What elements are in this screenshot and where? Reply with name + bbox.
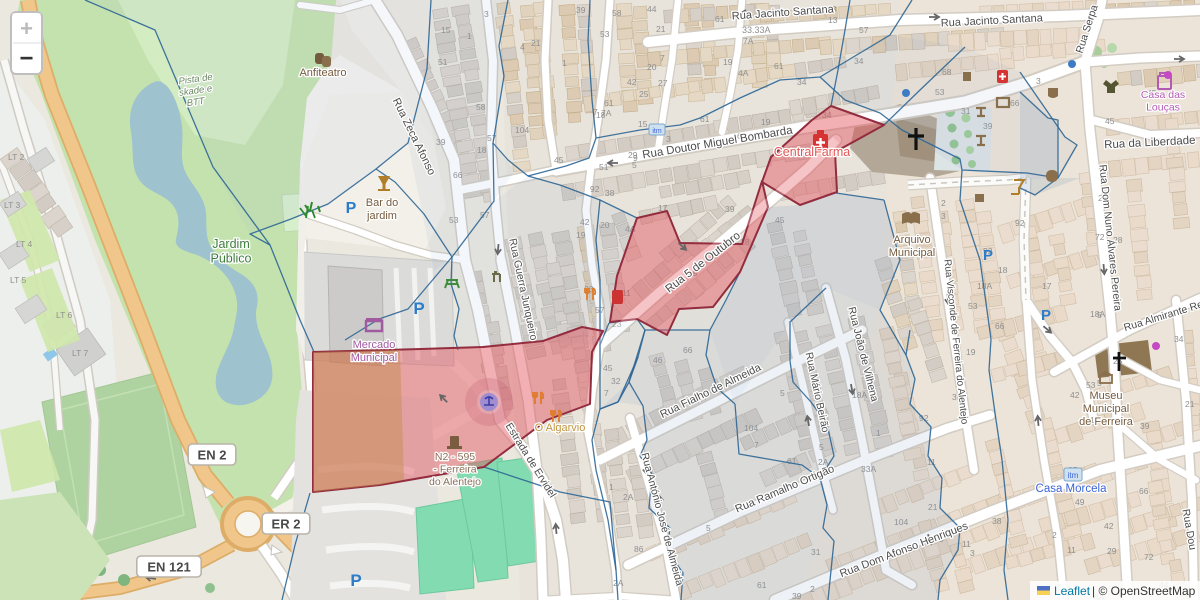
svg-text:EN 2: EN 2 bbox=[198, 448, 227, 463]
svg-text:| © OpenStreetMap: | © OpenStreetMap bbox=[1092, 584, 1196, 598]
svg-text:Municipal: Municipal bbox=[1083, 403, 1129, 415]
svg-text:19: 19 bbox=[723, 57, 733, 67]
svg-text:Municipal: Municipal bbox=[351, 352, 397, 364]
svg-text:P: P bbox=[1041, 307, 1051, 324]
svg-text:- Ferreira: - Ferreira bbox=[433, 464, 476, 476]
svg-text:3: 3 bbox=[970, 548, 975, 558]
svg-text:42: 42 bbox=[627, 77, 637, 87]
svg-text:Louças: Louças bbox=[1146, 102, 1180, 114]
svg-text:LT 5: LT 5 bbox=[10, 275, 26, 285]
svg-text:19: 19 bbox=[761, 117, 771, 127]
svg-text:66: 66 bbox=[995, 321, 1005, 331]
svg-text:39: 39 bbox=[1140, 421, 1150, 431]
svg-text:jardim: jardim bbox=[366, 210, 397, 222]
svg-text:34: 34 bbox=[1174, 334, 1184, 344]
svg-text:45: 45 bbox=[1105, 116, 1115, 126]
svg-text:104: 104 bbox=[515, 125, 529, 135]
svg-text:O Algarvio: O Algarvio bbox=[535, 422, 586, 434]
svg-text:18: 18 bbox=[998, 265, 1008, 275]
svg-text:61: 61 bbox=[715, 14, 725, 24]
svg-text:4: 4 bbox=[520, 42, 525, 52]
svg-text:42: 42 bbox=[1070, 390, 1080, 400]
svg-text:72: 72 bbox=[1095, 232, 1105, 242]
svg-text:39: 39 bbox=[725, 204, 735, 214]
svg-text:Municipal: Municipal bbox=[889, 247, 935, 259]
svg-text:33.33A: 33.33A bbox=[742, 25, 771, 35]
svg-text:17: 17 bbox=[1042, 281, 1052, 291]
svg-text:5: 5 bbox=[1097, 310, 1102, 320]
svg-text:5: 5 bbox=[632, 160, 637, 170]
svg-text:Leaflet: Leaflet bbox=[1054, 584, 1091, 598]
svg-text:ER 2: ER 2 bbox=[272, 517, 301, 532]
svg-text:do Alentejo: do Alentejo bbox=[429, 476, 481, 488]
svg-text:7A: 7A bbox=[743, 36, 754, 46]
svg-text:Arquivo: Arquivo bbox=[893, 234, 930, 246]
svg-text:61: 61 bbox=[774, 61, 784, 71]
svg-text:57: 57 bbox=[859, 25, 869, 35]
svg-text:2A: 2A bbox=[623, 492, 634, 502]
svg-text:21: 21 bbox=[656, 24, 666, 34]
svg-text:EN 121: EN 121 bbox=[147, 560, 190, 575]
svg-text:21: 21 bbox=[531, 38, 541, 48]
svg-text:Bar do: Bar do bbox=[366, 197, 398, 209]
svg-text:P: P bbox=[413, 299, 424, 318]
svg-text:P: P bbox=[350, 571, 361, 590]
svg-text:38: 38 bbox=[605, 188, 615, 198]
svg-text:Anfiteatro: Anfiteatro bbox=[299, 67, 346, 79]
svg-text:P: P bbox=[983, 247, 993, 264]
svg-text:15: 15 bbox=[638, 119, 648, 129]
svg-text:2: 2 bbox=[941, 198, 946, 208]
svg-text:Museu: Museu bbox=[1089, 390, 1122, 402]
svg-text:2: 2 bbox=[1052, 530, 1057, 540]
svg-text:LT 4: LT 4 bbox=[16, 239, 32, 249]
svg-text:66: 66 bbox=[1139, 486, 1149, 496]
svg-text:39: 39 bbox=[576, 5, 586, 15]
svg-text:1: 1 bbox=[562, 58, 567, 68]
svg-text:61: 61 bbox=[604, 98, 614, 108]
svg-text:LT 6: LT 6 bbox=[56, 310, 72, 320]
svg-text:Público: Público bbox=[211, 252, 252, 266]
svg-text:13: 13 bbox=[828, 15, 838, 25]
svg-text:3: 3 bbox=[1036, 76, 1041, 86]
svg-text:38: 38 bbox=[992, 516, 1002, 526]
svg-text:Jardim: Jardim bbox=[212, 237, 250, 251]
svg-text:27: 27 bbox=[658, 78, 668, 88]
svg-text:53: 53 bbox=[1086, 380, 1096, 390]
svg-text:53: 53 bbox=[968, 301, 978, 311]
svg-text:53: 53 bbox=[600, 29, 610, 39]
svg-text:2A: 2A bbox=[613, 578, 624, 588]
svg-text:18: 18 bbox=[596, 110, 606, 120]
svg-text:20: 20 bbox=[647, 62, 657, 72]
svg-text:3: 3 bbox=[666, 134, 671, 144]
svg-text:Mercado: Mercado bbox=[353, 339, 396, 351]
svg-text:11: 11 bbox=[1067, 545, 1076, 555]
svg-text:92: 92 bbox=[1015, 218, 1025, 228]
svg-text:92: 92 bbox=[590, 184, 600, 194]
svg-text:Casa das: Casa das bbox=[1141, 89, 1185, 101]
svg-text:72: 72 bbox=[1144, 552, 1154, 562]
svg-text:7: 7 bbox=[660, 53, 665, 63]
svg-text:de Ferreira: de Ferreira bbox=[1079, 416, 1134, 428]
svg-text:4A: 4A bbox=[738, 68, 749, 78]
svg-text:LT 3: LT 3 bbox=[4, 200, 20, 210]
svg-text:itm: itm bbox=[1068, 471, 1079, 480]
svg-text:itm: itm bbox=[652, 128, 662, 135]
svg-text:58: 58 bbox=[612, 8, 622, 18]
svg-text:42: 42 bbox=[1104, 521, 1114, 531]
svg-text:N2 - 595: N2 - 595 bbox=[435, 451, 475, 463]
svg-text:45: 45 bbox=[554, 155, 564, 165]
svg-text:86: 86 bbox=[634, 544, 644, 554]
svg-text:LT 7: LT 7 bbox=[72, 348, 88, 358]
svg-text:29: 29 bbox=[1107, 546, 1117, 556]
svg-text:−: − bbox=[19, 45, 33, 72]
svg-text:CentralFarma: CentralFarma bbox=[774, 145, 850, 159]
svg-text:49: 49 bbox=[1075, 497, 1085, 507]
svg-text:29: 29 bbox=[628, 150, 638, 160]
svg-text:19: 19 bbox=[966, 347, 976, 357]
svg-text:3: 3 bbox=[941, 211, 946, 221]
svg-text:1: 1 bbox=[609, 482, 614, 492]
svg-text:25: 25 bbox=[639, 89, 649, 99]
svg-text:21: 21 bbox=[1185, 399, 1195, 409]
svg-text:LT 2: LT 2 bbox=[8, 152, 24, 162]
svg-text:44: 44 bbox=[647, 4, 657, 14]
svg-text:Casa Morcela: Casa Morcela bbox=[1036, 483, 1108, 495]
svg-text:+: + bbox=[20, 16, 33, 41]
svg-text:P: P bbox=[346, 200, 357, 217]
